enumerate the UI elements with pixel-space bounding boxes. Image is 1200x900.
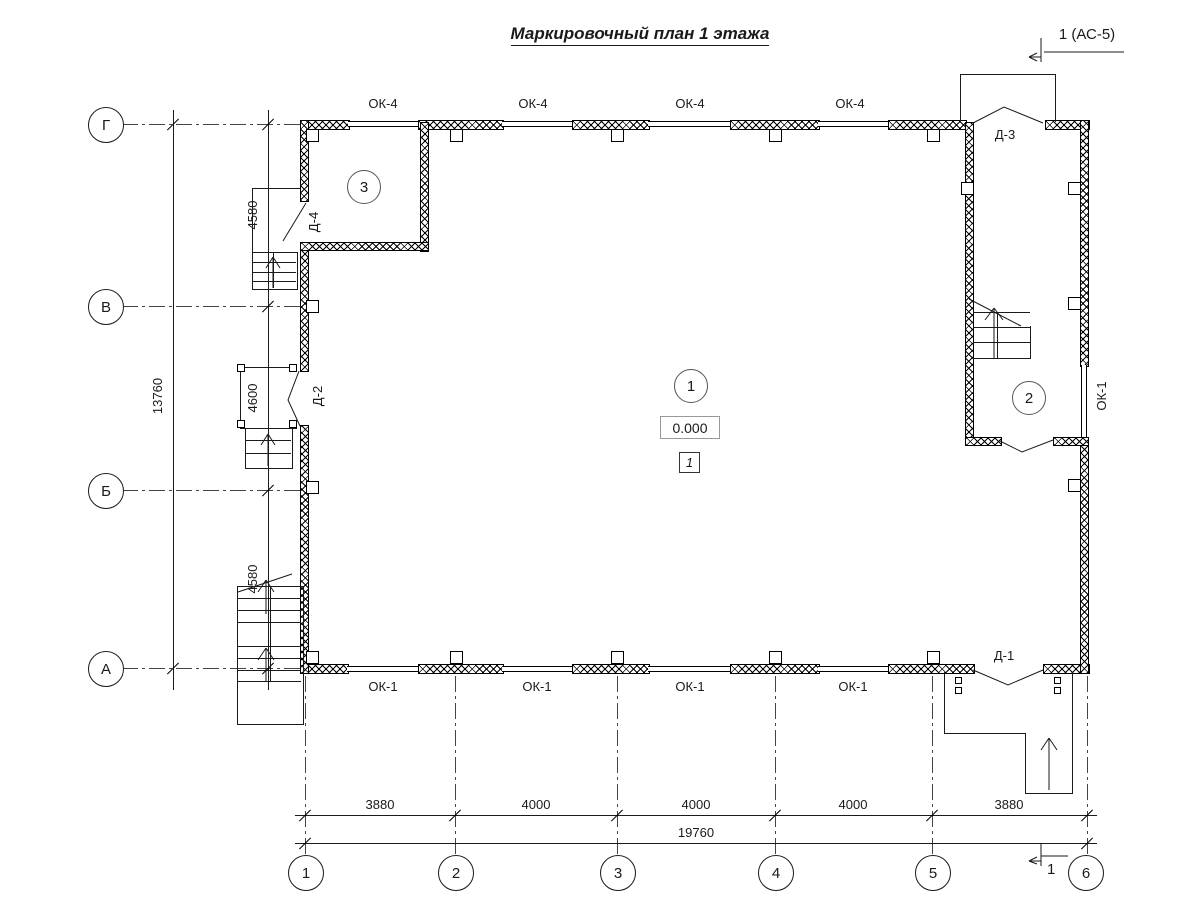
dim-bottom-total: 19760 [646, 825, 746, 840]
wall-segment [418, 664, 504, 674]
axis-line-2 [455, 676, 456, 854]
steps-d2 [245, 428, 293, 469]
column-mark [1068, 182, 1081, 195]
porch-d1-outline [1025, 793, 1073, 794]
column-mark [927, 651, 940, 664]
stair-tread [973, 342, 1030, 343]
column-mark [306, 129, 319, 142]
step-divider [268, 428, 269, 467]
column-mark [611, 129, 624, 142]
column-mark [306, 300, 319, 313]
axis-bubble-3: 3 [600, 855, 636, 891]
dim-bottom-2: 4000 [486, 797, 586, 812]
window-ok1 [818, 666, 888, 672]
column-mark [1068, 479, 1081, 492]
porch-d4-outline [252, 188, 300, 189]
column-mark [306, 651, 319, 664]
room-bubble-1: 1 [674, 369, 708, 403]
window-label-ok1: ОК-1 [823, 679, 883, 694]
wall-segment [888, 664, 975, 674]
porch-d1-outline [1025, 733, 1026, 793]
door-d3-leaves [973, 107, 1043, 123]
axis-bubble-6: 6 [1068, 855, 1104, 891]
porch-d3-outline [1055, 74, 1056, 122]
porch-d2-outline [240, 367, 241, 428]
dim-bottom-1: 3880 [330, 797, 430, 812]
column-mark [1068, 297, 1081, 310]
column-mark [927, 129, 940, 142]
dim-bottom-3: 4000 [646, 797, 746, 812]
step-divider [273, 252, 274, 288]
dim-bottom-5: 3880 [959, 797, 1059, 812]
window-ok1-right [1081, 365, 1087, 437]
dim-left-total: 13760 [148, 366, 166, 426]
column-mark [769, 129, 782, 142]
window-ok4 [648, 121, 730, 127]
window-label-ok4: ОК-4 [820, 96, 880, 111]
zone-mark: 1 [679, 452, 700, 473]
door-frame-mark [955, 687, 962, 694]
window-ok1 [648, 666, 730, 672]
door-d2-leaves [288, 371, 300, 426]
column-mark [769, 651, 782, 664]
elevation-mark: 0.000 [660, 416, 720, 439]
axis-bubble-v: В [88, 289, 124, 325]
dim-bottom-4: 4000 [803, 797, 903, 812]
window-label-ok1: ОК-1 [507, 679, 567, 694]
dim-line-bottom-segments [295, 815, 1097, 816]
door-label-d4: Д-4 [304, 192, 322, 252]
wall-segment-room2 [1053, 437, 1089, 446]
window-label-ok1: ОК-1 [660, 679, 720, 694]
porch-post [237, 420, 245, 428]
porch-post [237, 364, 245, 372]
window-label-ok1: ОК-1 [353, 679, 413, 694]
axis-line-3 [617, 676, 618, 854]
porch-post [289, 420, 297, 428]
door-label-d1: Д-1 [974, 648, 1034, 663]
door-label-d3: Д-3 [975, 127, 1035, 142]
column-mark [306, 481, 319, 494]
window-ok4 [348, 121, 418, 127]
axis-line-4 [775, 676, 776, 854]
column-mark [611, 651, 624, 664]
stair-tread [973, 327, 1030, 328]
window-label-ok4: ОК-4 [660, 96, 720, 111]
window-label-ok4: ОК-4 [353, 96, 413, 111]
axis-bubble-2: 2 [438, 855, 474, 891]
dim-line-left-total [173, 110, 174, 690]
axis-line-v [122, 306, 302, 307]
wall-segment [1080, 120, 1089, 367]
porch-d1-outline [944, 733, 1025, 734]
porch-d1-outline [944, 672, 945, 733]
column-mark [961, 182, 974, 195]
room-bubble-2: 2 [1012, 381, 1046, 415]
door-frame-mark [1054, 687, 1061, 694]
door-label-d2: Д-2 [308, 366, 326, 426]
axis-line-b [122, 490, 302, 491]
door-room2-leaves [1000, 440, 1053, 452]
window-label-ok4: ОК-4 [503, 96, 563, 111]
window-ok1 [347, 666, 418, 672]
porch-d4-outline [252, 188, 253, 252]
steps-d4 [252, 252, 298, 290]
door-d4-leaf [283, 203, 306, 241]
window-label-ok1-right: ОК-1 [1092, 366, 1110, 426]
axis-bubble-a: А [88, 651, 124, 687]
window-ok1 [502, 666, 572, 672]
axis-line-6 [1087, 676, 1088, 854]
axis-bubble-g: Г [88, 107, 124, 143]
porch-d3-outline [960, 74, 1055, 75]
wall-segment-room3 [420, 122, 429, 252]
wall-segment [1080, 437, 1089, 674]
section-mark-bottom-label: 1 [1047, 861, 1063, 878]
floor-plan-sheet: Маркировочный план 1 этажа 1 (АС-5) 1 Г … [0, 0, 1200, 900]
dim-left-2: 4600 [243, 368, 261, 428]
porch-d3-outline [960, 74, 961, 122]
step-tread [252, 262, 296, 263]
room-bubble-3: 3 [347, 170, 381, 204]
drawing-title: Маркировочный план 1 этажа [440, 24, 840, 44]
axis-bubble-b: Б [88, 473, 124, 509]
stair-divider [270, 587, 271, 682]
wall-segment-room2 [965, 122, 974, 445]
porch-post [289, 364, 297, 372]
column-mark [450, 129, 463, 142]
axis-line-5 [932, 676, 933, 854]
wall-segment-room2 [965, 437, 1002, 446]
wall-segment [730, 664, 820, 674]
wall-segment [572, 664, 650, 674]
stair-edge [1030, 326, 1031, 359]
column-mark [450, 651, 463, 664]
stair-divider [997, 312, 998, 358]
porch-d1-outline [1072, 672, 1073, 793]
section-mark-top-label: 1 (АС-5) [1044, 26, 1130, 43]
window-ok4 [818, 121, 888, 127]
stair-tread [973, 358, 1030, 359]
axis-bubble-1: 1 [288, 855, 324, 891]
dim-line-bottom-total [295, 843, 1097, 844]
door-d1-leaves [973, 670, 1043, 685]
stair-tread [973, 312, 1030, 313]
step-tread [252, 272, 296, 273]
stair-arrow [1041, 738, 1057, 790]
door-frame-mark [955, 677, 962, 684]
stair-arrow [985, 308, 1003, 358]
axis-bubble-5: 5 [915, 855, 951, 891]
step-tread [252, 281, 296, 282]
door-frame-mark [1054, 677, 1061, 684]
axis-bubble-4: 4 [758, 855, 794, 891]
axis-line-g [122, 124, 302, 125]
window-ok4 [502, 121, 572, 127]
axis-line-1 [305, 676, 306, 854]
